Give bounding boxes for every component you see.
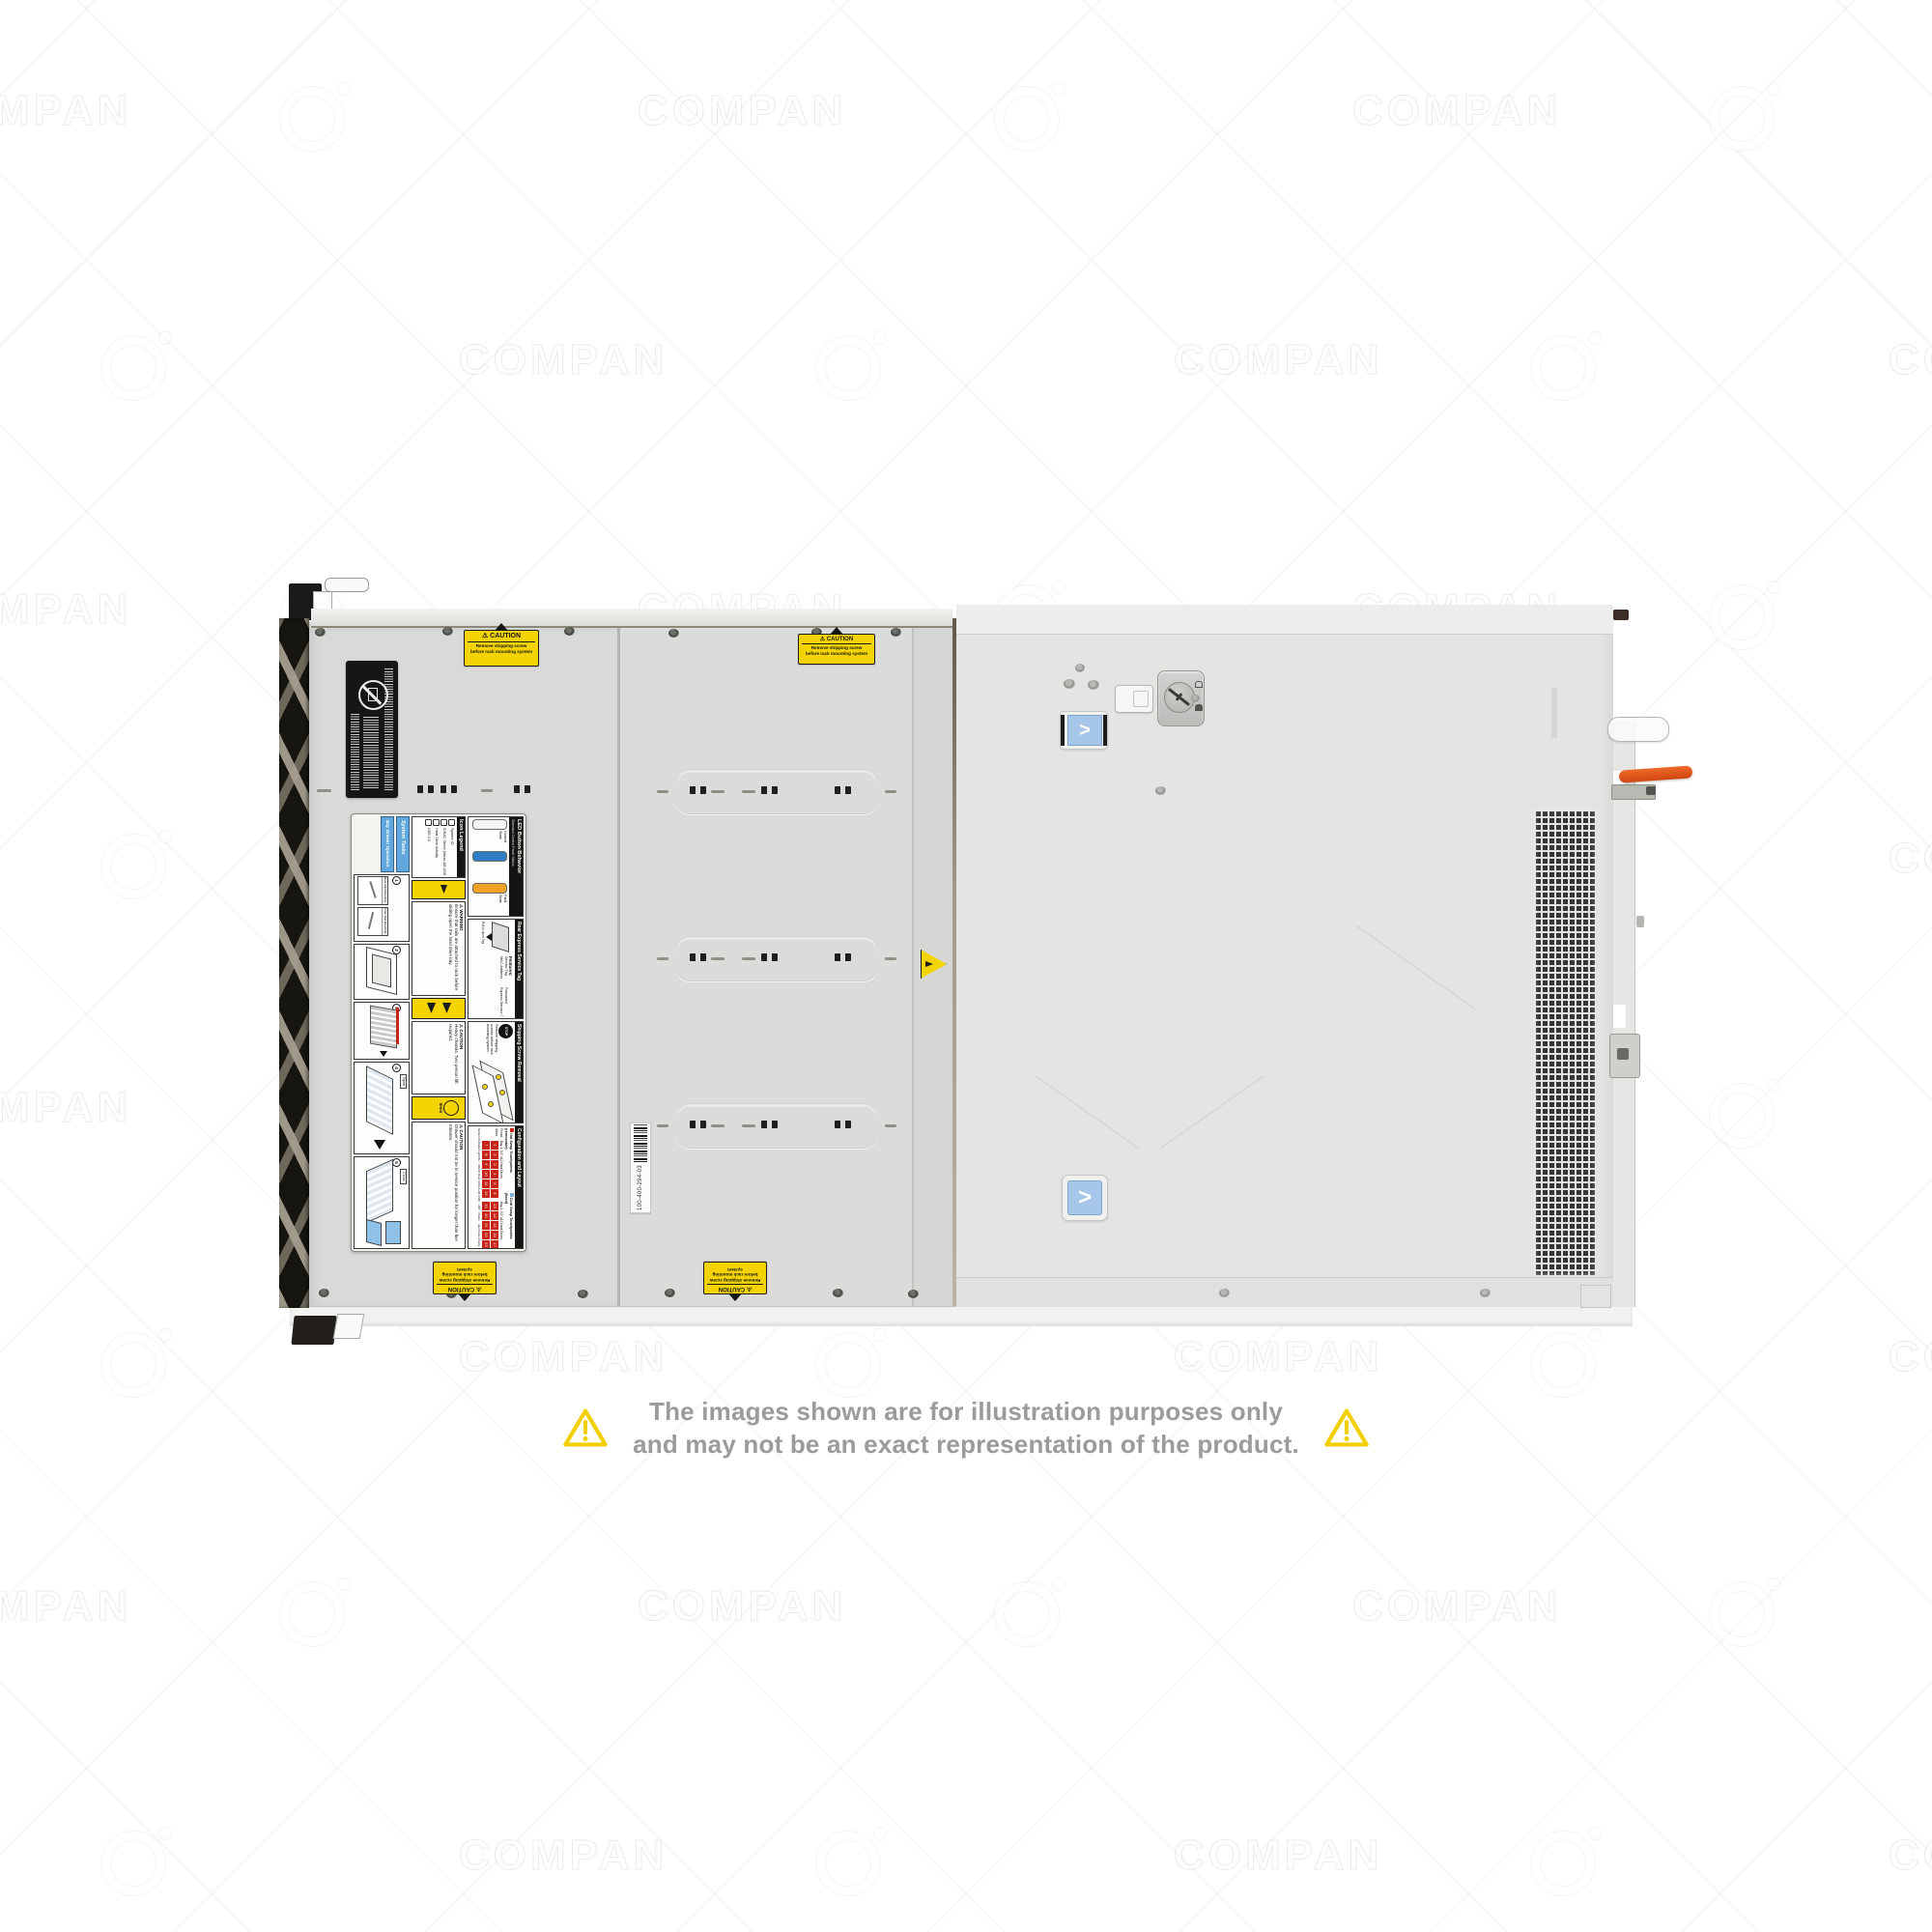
front-rail-label: Front Rail Mounting [382, 908, 387, 935]
sticker-pointer-icon [458, 1293, 471, 1301]
vent-dash [481, 789, 493, 792]
side-pin [1636, 916, 1644, 927]
led-pill-icon [472, 883, 507, 894]
task-step-4: 4 Open [354, 1062, 410, 1154]
section-header: Icon Legend [457, 817, 465, 877]
vent-grid [1534, 810, 1596, 1275]
step-number: 5 [392, 1158, 401, 1167]
feature-item: Express Service Code [498, 987, 503, 1016]
open-label: Open [400, 1074, 407, 1089]
screw-dot-icon [496, 1074, 501, 1080]
barcode-text: 100-400-294-03 [638, 1165, 643, 1210]
legend-hot: Hot Swap Touchpoints (removable) [504, 1128, 514, 1189]
disclaimer-text: The images shown are for illustration pu… [633, 1395, 1299, 1461]
legend-label: Hard Drive Activity [434, 828, 439, 858]
drive-cell: 1 [491, 1141, 498, 1150]
drive-cell: 6 [491, 1189, 498, 1198]
vent-slot-pair [761, 953, 778, 961]
screw-hole [668, 629, 679, 638]
caution-header: ⚠ CAUTION [468, 632, 535, 642]
drive-cell: 2 [491, 1151, 498, 1159]
latch-bracket-icon [1103, 715, 1107, 746]
shipping-diagram [474, 1065, 513, 1121]
legend-glyph-icon [448, 819, 455, 826]
fine-print [351, 713, 359, 790]
led-state [472, 851, 507, 880]
tag-shape [492, 922, 509, 952]
warning-text: Ensure that rails are attached to rack b… [448, 904, 459, 993]
icon-legend-item: Hard Drive Activity [433, 819, 440, 875]
screw-hole [665, 1289, 675, 1297]
screw-hole [833, 1289, 843, 1297]
vent-dash [711, 957, 724, 960]
slider-notch [1133, 691, 1149, 707]
led-pill-icon [472, 819, 507, 830]
pinch-glyph [925, 961, 933, 967]
cover-release-touchpoint-bottom[interactable]: > [1062, 1175, 1108, 1221]
cover-slider-latch[interactable] [1115, 685, 1153, 713]
screw-hole [442, 627, 453, 636]
cover-screw [1088, 680, 1099, 690]
shipping-screw-section: Shipping Screw Removal STOP Remove shipp… [468, 1021, 524, 1123]
main-cover [956, 605, 1613, 1306]
legend-label: System ID [449, 828, 454, 845]
stop-icon: STOP [498, 1024, 513, 1038]
disclaimer-line-1: The images shown are for illustration pu… [633, 1395, 1299, 1428]
feature-item: Password [503, 987, 508, 1016]
drive-cell: 7 [482, 1141, 490, 1150]
fine-print [363, 717, 379, 788]
step-number: 1 [392, 876, 401, 885]
unlock-icon [1195, 681, 1203, 688]
caution-sticker: ⚠ CAUTION Remove shipping screw before r… [703, 1262, 767, 1294]
lock-screw [1191, 695, 1200, 702]
right-edge-notch-2 [1613, 1005, 1626, 1028]
cover-release-touchpoint-top[interactable]: > [1060, 711, 1108, 750]
caution-line: Remove shipping screw [704, 1277, 766, 1283]
vent-slot-pair [417, 785, 434, 793]
vent-dash [657, 1124, 668, 1127]
led-state-label: Fault State [472, 895, 507, 912]
led-pill-icon [472, 851, 507, 862]
screw-hole [1155, 786, 1166, 795]
drive-cell: 5 [491, 1179, 498, 1188]
drive-cell: 22 [482, 1231, 490, 1239]
bay-drawer-header: Bay Drawer Operation [381, 816, 394, 872]
screw-hole [1480, 1289, 1491, 1297]
bottom-rail [290, 1306, 1633, 1326]
warning-box: ⚠ WARNING Ensure that rails are attached… [412, 901, 466, 996]
icon-legend-item: System ID [448, 819, 455, 875]
caution-line: before rack mounting system [465, 649, 538, 655]
sticker-pointer-icon [728, 1293, 742, 1301]
barcode-label-inner: 100-400-294-03 [631, 1122, 650, 1212]
caution-line: before rack mounting system [704, 1266, 766, 1277]
screw-hole [319, 1289, 329, 1297]
caution-sticker: ⚠ CAUTION Remove shipping screw before r… [798, 634, 875, 665]
task-step-5: 5 Close [354, 1156, 410, 1249]
caution-text: Drawer should not be in service position… [448, 1124, 459, 1246]
regulatory-label [346, 661, 398, 798]
led-button-behavior-section: LED Button Behavior Standard Control Pan… [468, 816, 524, 917]
screw-hole [908, 1290, 919, 1298]
drive-cell: 20 [482, 1211, 490, 1220]
vent-dash [657, 957, 668, 960]
disclaimer-line-2: and may not be an exact representation o… [633, 1428, 1299, 1461]
server-chassis: ⚠ CAUTION Remove shipping screw before r… [0, 0, 1932, 1932]
disclaimer: The images shown are for illustration pu… [483, 1399, 1449, 1457]
vent-dash [885, 790, 896, 793]
screw-dot-icon [499, 1090, 505, 1095]
screw-dot-icon [482, 1084, 488, 1090]
vent-slot-pair [690, 786, 706, 794]
led-state: Fault State [472, 883, 507, 912]
caution-line: Remove shipping screw [434, 1277, 496, 1283]
barcode-icon [634, 1122, 647, 1162]
barcode-label: 100-400-294-03 [630, 1122, 651, 1213]
vent-slot-pair [835, 953, 851, 961]
caution-title: ⚠ CAUTION [459, 1024, 464, 1092]
vent-dash [711, 790, 724, 793]
sticker-pointer-icon [495, 623, 508, 631]
service-label: LED Button Behavior Standard Control Pan… [351, 813, 526, 1252]
rear-screw-head [1613, 610, 1629, 620]
warning-title: ⚠ WARNING [459, 904, 464, 993]
config-caption: System ID/Status Light Bar [477, 1128, 482, 1161]
feature-item: Service Tag [503, 956, 508, 985]
system-tasks-header: System Tasks [396, 816, 410, 872]
drive-cell: 11 [482, 1179, 490, 1188]
screw-hole [564, 627, 575, 636]
tasks-headers: System Tasks Bay Drawer Operation [354, 816, 410, 872]
bay1-grid: 123456789101112 [482, 1141, 498, 1198]
vent-dash [742, 1124, 755, 1127]
task-step-2: 2 [354, 944, 410, 1000]
bay1-label: Bay 1: 3.5" x12 Hard Drives [498, 1141, 503, 1198]
caution-header: ⚠ CAUTION [802, 636, 871, 644]
led-states: Normal State Fault State [470, 817, 509, 916]
front-bezel-latches [279, 618, 309, 1308]
icon-legend-item: USB 2.0 [425, 819, 432, 875]
chevron-right-icon: > [1067, 715, 1102, 746]
vent-dash [885, 1124, 896, 1127]
vent-slot-pair [440, 785, 457, 793]
drive-cell: 15 [491, 1221, 498, 1230]
caution-box-heavy: ⚠ CAUTION Heavy chassis. Two person lift… [412, 1021, 466, 1094]
section-header: LED Button Behavior [515, 817, 523, 916]
config-caption: USB [477, 1205, 482, 1210]
drawer-top-rail [311, 609, 952, 628]
legend-glyph-icon [433, 819, 440, 826]
vent-slot-pair [761, 1121, 778, 1128]
lever-clasp-pin [1646, 786, 1656, 795]
legend-cold: Cold Swap Touchpoints (fixed) [504, 1193, 514, 1246]
latch-bracket-icon [1061, 715, 1065, 746]
drive-cell: 12 [482, 1189, 490, 1198]
screw-hole [315, 628, 326, 637]
vent-slot-pair [761, 786, 778, 794]
drive-cell: 9 [482, 1160, 490, 1169]
chevron-right-icon: > [1067, 1180, 1102, 1215]
caution-sticker: ⚠ CAUTION Remove shipping screw before r… [433, 1262, 497, 1294]
rear-handle [1607, 717, 1669, 742]
cover-bottom-square [1580, 1285, 1611, 1308]
close-label: Close [400, 1169, 407, 1184]
section-header: Configuration and Layout [515, 1126, 523, 1248]
arrow-right-icon [374, 1140, 385, 1150]
caution-title: ⚠ CAUTION [459, 1124, 464, 1246]
section-header: Shipping Screw Removal [515, 1022, 523, 1122]
task-step-1: 1 Rear Rail Mounting Front Rail Mounting [354, 874, 410, 942]
drive-cell: 3 [491, 1160, 498, 1169]
legend-glyph-icon [425, 819, 432, 826]
led-state-label [472, 863, 507, 880]
legend-label: iDRAC Direct (Micro-AB USB) [441, 828, 446, 875]
rack-ear-bottom-left-clip [333, 1314, 365, 1339]
rail-pin-top [325, 578, 369, 592]
drive-cell: 13 [491, 1202, 498, 1210]
drive-cell: 17 [491, 1240, 498, 1249]
side-latch-bottom [1609, 1034, 1640, 1078]
led-state-label: Normal State [472, 831, 507, 848]
vent-slot-pair [690, 1121, 706, 1128]
drawer-closed-icon [385, 1221, 401, 1244]
config-caption: Hard Drive Activity [477, 1224, 482, 1246]
vent-slot-pair [835, 1121, 851, 1128]
bay2-grid: 131415161718192021222324 [482, 1202, 498, 1249]
rack-ear-bottom-left [291, 1316, 336, 1345]
legend-label: USB 2.0 [426, 828, 431, 841]
cover-screw [1064, 679, 1075, 689]
icon-legend-item: iDRAC Direct (Micro-AB USB) [440, 819, 447, 875]
five-minute-text: 5min [439, 1097, 443, 1119]
caution-header: ⚠ CAUTION [707, 1284, 763, 1293]
product-photo-page: COMPANCOMPANCOMPANCOMPANCOMPANCOMPANCOMP… [0, 0, 1932, 1932]
drive-cell: 16 [491, 1231, 498, 1239]
screw-hole [891, 628, 901, 637]
sticker-pointer-icon [830, 627, 843, 635]
led-state: Normal State [472, 819, 507, 848]
pinch-hazard-icon [412, 998, 466, 1019]
features-list: Service TagPasswordMAC AddressExpress Se… [498, 956, 507, 1016]
service-tag-section: Rear Express Service Tag Pull to open Ta… [468, 919, 524, 1019]
task-step-3: 3 [354, 1002, 410, 1060]
vent-dash [742, 790, 755, 793]
vent-dash [317, 789, 331, 792]
config-caption: iDRAC Direct (Micro-AB USB) [477, 1164, 482, 1201]
vent-slot-pair [690, 953, 706, 961]
screw-dot-icon [488, 1101, 494, 1107]
pinch-glyph [427, 1003, 436, 1013]
pinch-glyph [442, 1003, 451, 1013]
section-header: Rear Express Service Tag [515, 920, 523, 1018]
arrow-right-icon [380, 1051, 387, 1057]
vent-dash [711, 1124, 724, 1127]
shipping-text: Remove shipping screws before rack mount… [485, 1024, 498, 1063]
rear-rail-label: Rear Rail Mounting [382, 877, 387, 904]
vent-slot-pair [835, 786, 851, 794]
cover-screw [1075, 664, 1085, 672]
cover-cam-lock[interactable] [1157, 670, 1205, 726]
drive-cell: 8 [482, 1151, 490, 1159]
warning-triangle-icon [563, 1407, 608, 1448]
screw-hole [1219, 1289, 1230, 1297]
drive-cell: 23 [482, 1240, 490, 1249]
vent-dash [742, 957, 755, 960]
vent-slot-pair [514, 785, 530, 793]
caution-box-drawer: ⚠ CAUTION Drawer should not be in servic… [412, 1122, 466, 1249]
arrow-down-icon [486, 933, 492, 941]
feature-item: MAC Address [498, 956, 503, 985]
pinch-hazard-icon [412, 880, 466, 899]
side-latch-hole [1617, 1048, 1629, 1060]
vent-dash [885, 957, 896, 960]
caution-sticker: ⚠ CAUTION Remove shipping screw before r… [464, 630, 539, 667]
caution-line: before rack mounting system [799, 651, 874, 657]
drive-cell: 14 [491, 1211, 498, 1220]
step-number: 4 [392, 1064, 401, 1072]
config-captions: System ID/Status Light BariDRAC Direct (… [476, 1126, 483, 1248]
cover-emboss-mark [1551, 688, 1557, 738]
warning-triangle-icon [1324, 1407, 1369, 1448]
configuration-layout-section: Configuration and Layout Hot Swap Touchp… [468, 1125, 524, 1249]
main-cover-bottom-strip [956, 1277, 1613, 1307]
bay2-label: Bay 2: 3.5" x12 Hard Drives [498, 1202, 503, 1249]
features-title: Features: [508, 956, 513, 1016]
drive-cell: 19 [482, 1202, 490, 1210]
drive-cell: 21 [482, 1221, 490, 1230]
caution-text: Heavy chassis. Two person lift required. [448, 1024, 459, 1092]
front-view-label: Front View [495, 1128, 503, 1137]
legend-glyph-icon [440, 819, 447, 826]
service-tag-diagram: Pull to open Tag [478, 922, 513, 954]
drive-cell: 10 [482, 1170, 490, 1179]
caution-line: before rack mounting system [434, 1266, 496, 1277]
icon-legend-list: System ID iDRAC Direct (Micro-AB USB) Ha… [424, 817, 457, 877]
drawer-closed-icon [366, 1219, 382, 1246]
caution-header: ⚠ CAUTION [437, 1284, 493, 1293]
drive-cell: 4 [491, 1170, 498, 1179]
tag-note: Pull to open Tag [480, 922, 485, 954]
main-cover-top-band [956, 605, 1613, 635]
pinch-glyph [440, 885, 447, 894]
icon-legend-section: Icon Legend System ID iDRAC Direct (Micr… [412, 816, 466, 878]
fine-print [384, 668, 393, 790]
service-label-content: LED Button Behavior Standard Control Pan… [352, 814, 526, 1251]
screw-hole [578, 1290, 588, 1298]
config-caption: Power [477, 1212, 482, 1220]
vent-dash [657, 790, 668, 793]
five-minute-icon: 5min [412, 1096, 466, 1120]
lock-icon [1195, 704, 1203, 711]
